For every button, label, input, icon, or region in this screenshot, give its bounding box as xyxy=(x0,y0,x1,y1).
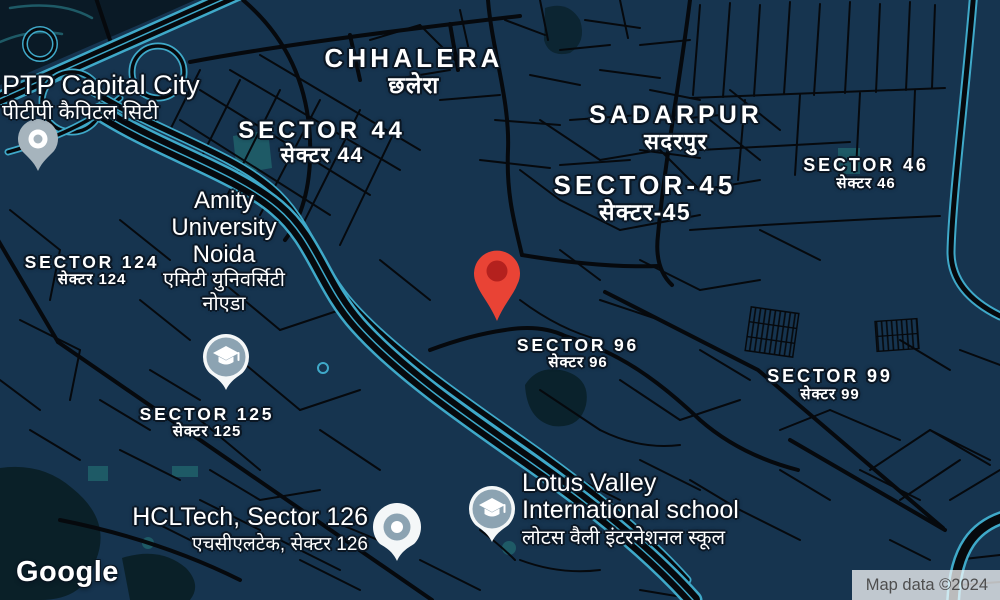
area-label-sector-99: SECTOR 99 सेक्टर 99 xyxy=(767,367,893,403)
map-canvas[interactable]: CHHALERA छलेरा SECTOR 44 सेक्टर 44 SADAR… xyxy=(0,0,1000,600)
area-label-sadarpur: SADARPUR सदरपुर xyxy=(589,102,763,154)
area-label-sector-45: SECTOR-45 सेक्टर-45 xyxy=(554,171,737,225)
poi-label-ptp-capital-city[interactable]: PTP Capital City पीटीपी कैपिटल सिटी xyxy=(2,71,200,124)
poi-label-lotus-valley-school[interactable]: Lotus Valley International school लोटस व… xyxy=(522,470,770,550)
google-logo[interactable]: Google xyxy=(16,556,119,589)
area-label-sector-46: SECTOR 46 सेक्टर 46 xyxy=(803,156,929,192)
area-label-sector-96: SECTOR 96 सेक्टर 96 xyxy=(517,336,639,372)
map-attribution: Map data ©2024 xyxy=(852,570,1000,600)
area-label-chhalera: CHHALERA छलेरा xyxy=(324,44,503,98)
area-label-sector-44: SECTOR 44 सेक्टर 44 xyxy=(238,118,406,167)
area-label-sector-124: SECTOR 124 सेक्टर 124 xyxy=(25,253,160,289)
poi-label-amity-university[interactable]: Amity University Noida एमिटी युनिवर्सिटी… xyxy=(154,187,294,317)
area-label-sector-125: SECTOR 125 सेक्टर 125 xyxy=(140,405,275,441)
poi-label-hcltech[interactable]: HCLTech, Sector 126 एचसीएलटेक, सेक्टर 12… xyxy=(102,504,368,555)
